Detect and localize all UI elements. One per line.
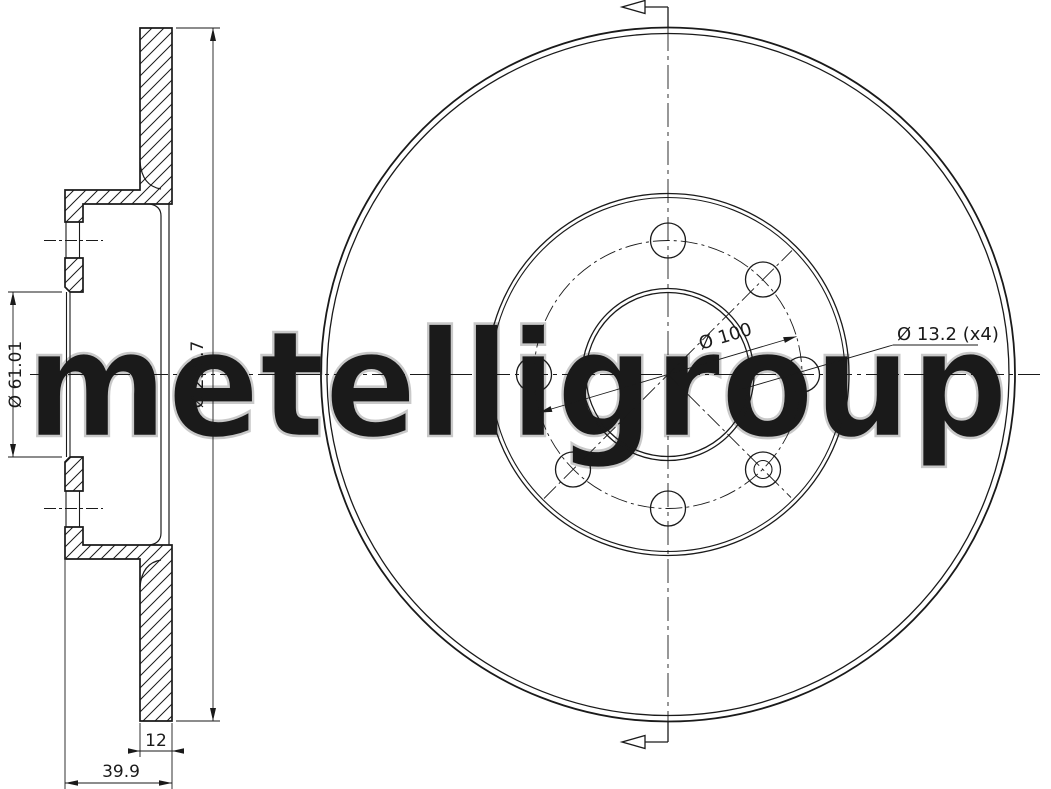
section-cut-arrow-bottom [622,721,668,749]
arrowhead [65,780,78,786]
hatched-section-lower-hub [65,457,83,491]
drawing-canvas: metelligroup [0,0,1051,789]
hatched-section-upper-hub [65,258,83,292]
dim-bolt-holes-label: Ø 13.2 (x4) [897,324,999,345]
dim-bore-label: Ø 61.01 [6,341,26,408]
hatched-section-upper [65,28,172,222]
watermark-text: metelligroup [26,299,1008,471]
cut-plane-arrow-icon [622,1,645,14]
arrowhead [210,28,216,41]
dim-overall-width-label: 39.9 [102,762,140,782]
arrowhead [10,292,16,305]
dim-thickness-label: 12 [145,731,167,751]
section-cut-arrow-top [622,1,668,29]
arrowhead [159,780,172,786]
brake-disc-technical-drawing: metelligroup [0,0,1051,789]
dimension-thickness: 12 [128,723,184,757]
dim-outer-diameter-label: Ø 259.7 [188,341,208,408]
hatched-section-lower [65,527,172,721]
arrowhead [210,708,216,721]
arrowhead [10,444,16,457]
arrowhead [172,748,184,754]
arrowhead [128,748,140,754]
cut-plane-arrow-icon [622,736,645,749]
